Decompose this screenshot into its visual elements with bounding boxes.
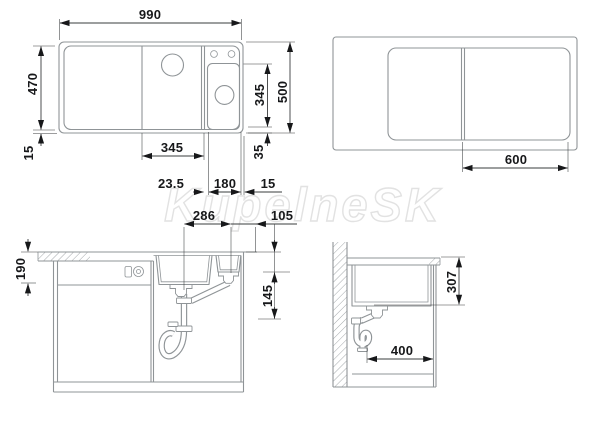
- dim-inner-depth: 470: [25, 73, 40, 95]
- small-bowl-drain: [215, 86, 234, 105]
- dim-main-bowl-width: 345: [161, 140, 183, 155]
- cutting-board-area: [388, 48, 570, 140]
- dim-board-width: 600: [505, 152, 527, 167]
- technical-drawing-canvas: KupelneSK 990 470 15 345 35: [0, 0, 600, 421]
- main-strainer: [170, 285, 192, 297]
- board-sink-outline: [333, 37, 577, 150]
- trap-outlet-nut: [168, 322, 178, 327]
- main-bowl-drain: [162, 54, 184, 76]
- dim-cabinet-depth: 400: [391, 343, 413, 358]
- countertop-hatch: [38, 252, 90, 261]
- board-plan-view: 600: [333, 37, 577, 172]
- side-section-view: 307 400: [333, 242, 465, 387]
- drain-control-switch-icon: [125, 267, 132, 278]
- small-strainer: [219, 272, 239, 283]
- sink-installation-drawing: KupelneSK 990 470 15 345 35: [0, 0, 600, 421]
- sink-outer-rim: [59, 42, 243, 133]
- sink-inner-rim: [64, 46, 240, 130]
- dim-bowl-depth: 190: [13, 258, 28, 280]
- dim-outlet-drop: 145: [260, 285, 275, 307]
- dim-overall-width: 990: [139, 7, 161, 22]
- tap-hole-left: [211, 51, 218, 58]
- pipe-nut-lower: [176, 326, 192, 332]
- side-bowl-outer: [352, 265, 431, 306]
- dim-divider-to-small-bowl: 23.5: [158, 176, 184, 191]
- front-section-view: 190 286 105 145: [13, 208, 297, 392]
- drain-control-knob-icon: [134, 267, 144, 277]
- wall-hatch: [333, 242, 347, 387]
- dim-counter-to-outlet: 307: [444, 271, 459, 293]
- dim-overall-depth: 500: [275, 81, 290, 103]
- side-elbow-nut: [352, 318, 361, 324]
- dim-bottom-rim-offset: 35: [251, 145, 266, 160]
- countertop-end-hatch: [429, 258, 440, 265]
- side-outlet-flange: [358, 348, 368, 352]
- dim-right-edge-offset: 15: [261, 176, 276, 191]
- pipe-nut-upper: [177, 298, 192, 304]
- dim-drain-to-edge: 105: [271, 208, 293, 223]
- small-bowl: [208, 64, 240, 130]
- tap-hole-right: [228, 51, 235, 58]
- dim-small-bowl-width: 180: [214, 176, 236, 191]
- plan-view: 990 470 15 345 35 500 345 2: [21, 7, 295, 195]
- watermark-text: KupelneSK: [164, 178, 442, 231]
- dim-left-edge-offset: 15: [21, 146, 36, 161]
- dim-drain-spacing: 286: [193, 208, 215, 223]
- drain-control-knob-center: [137, 270, 141, 274]
- dim-small-bowl-depth: 345: [252, 84, 267, 106]
